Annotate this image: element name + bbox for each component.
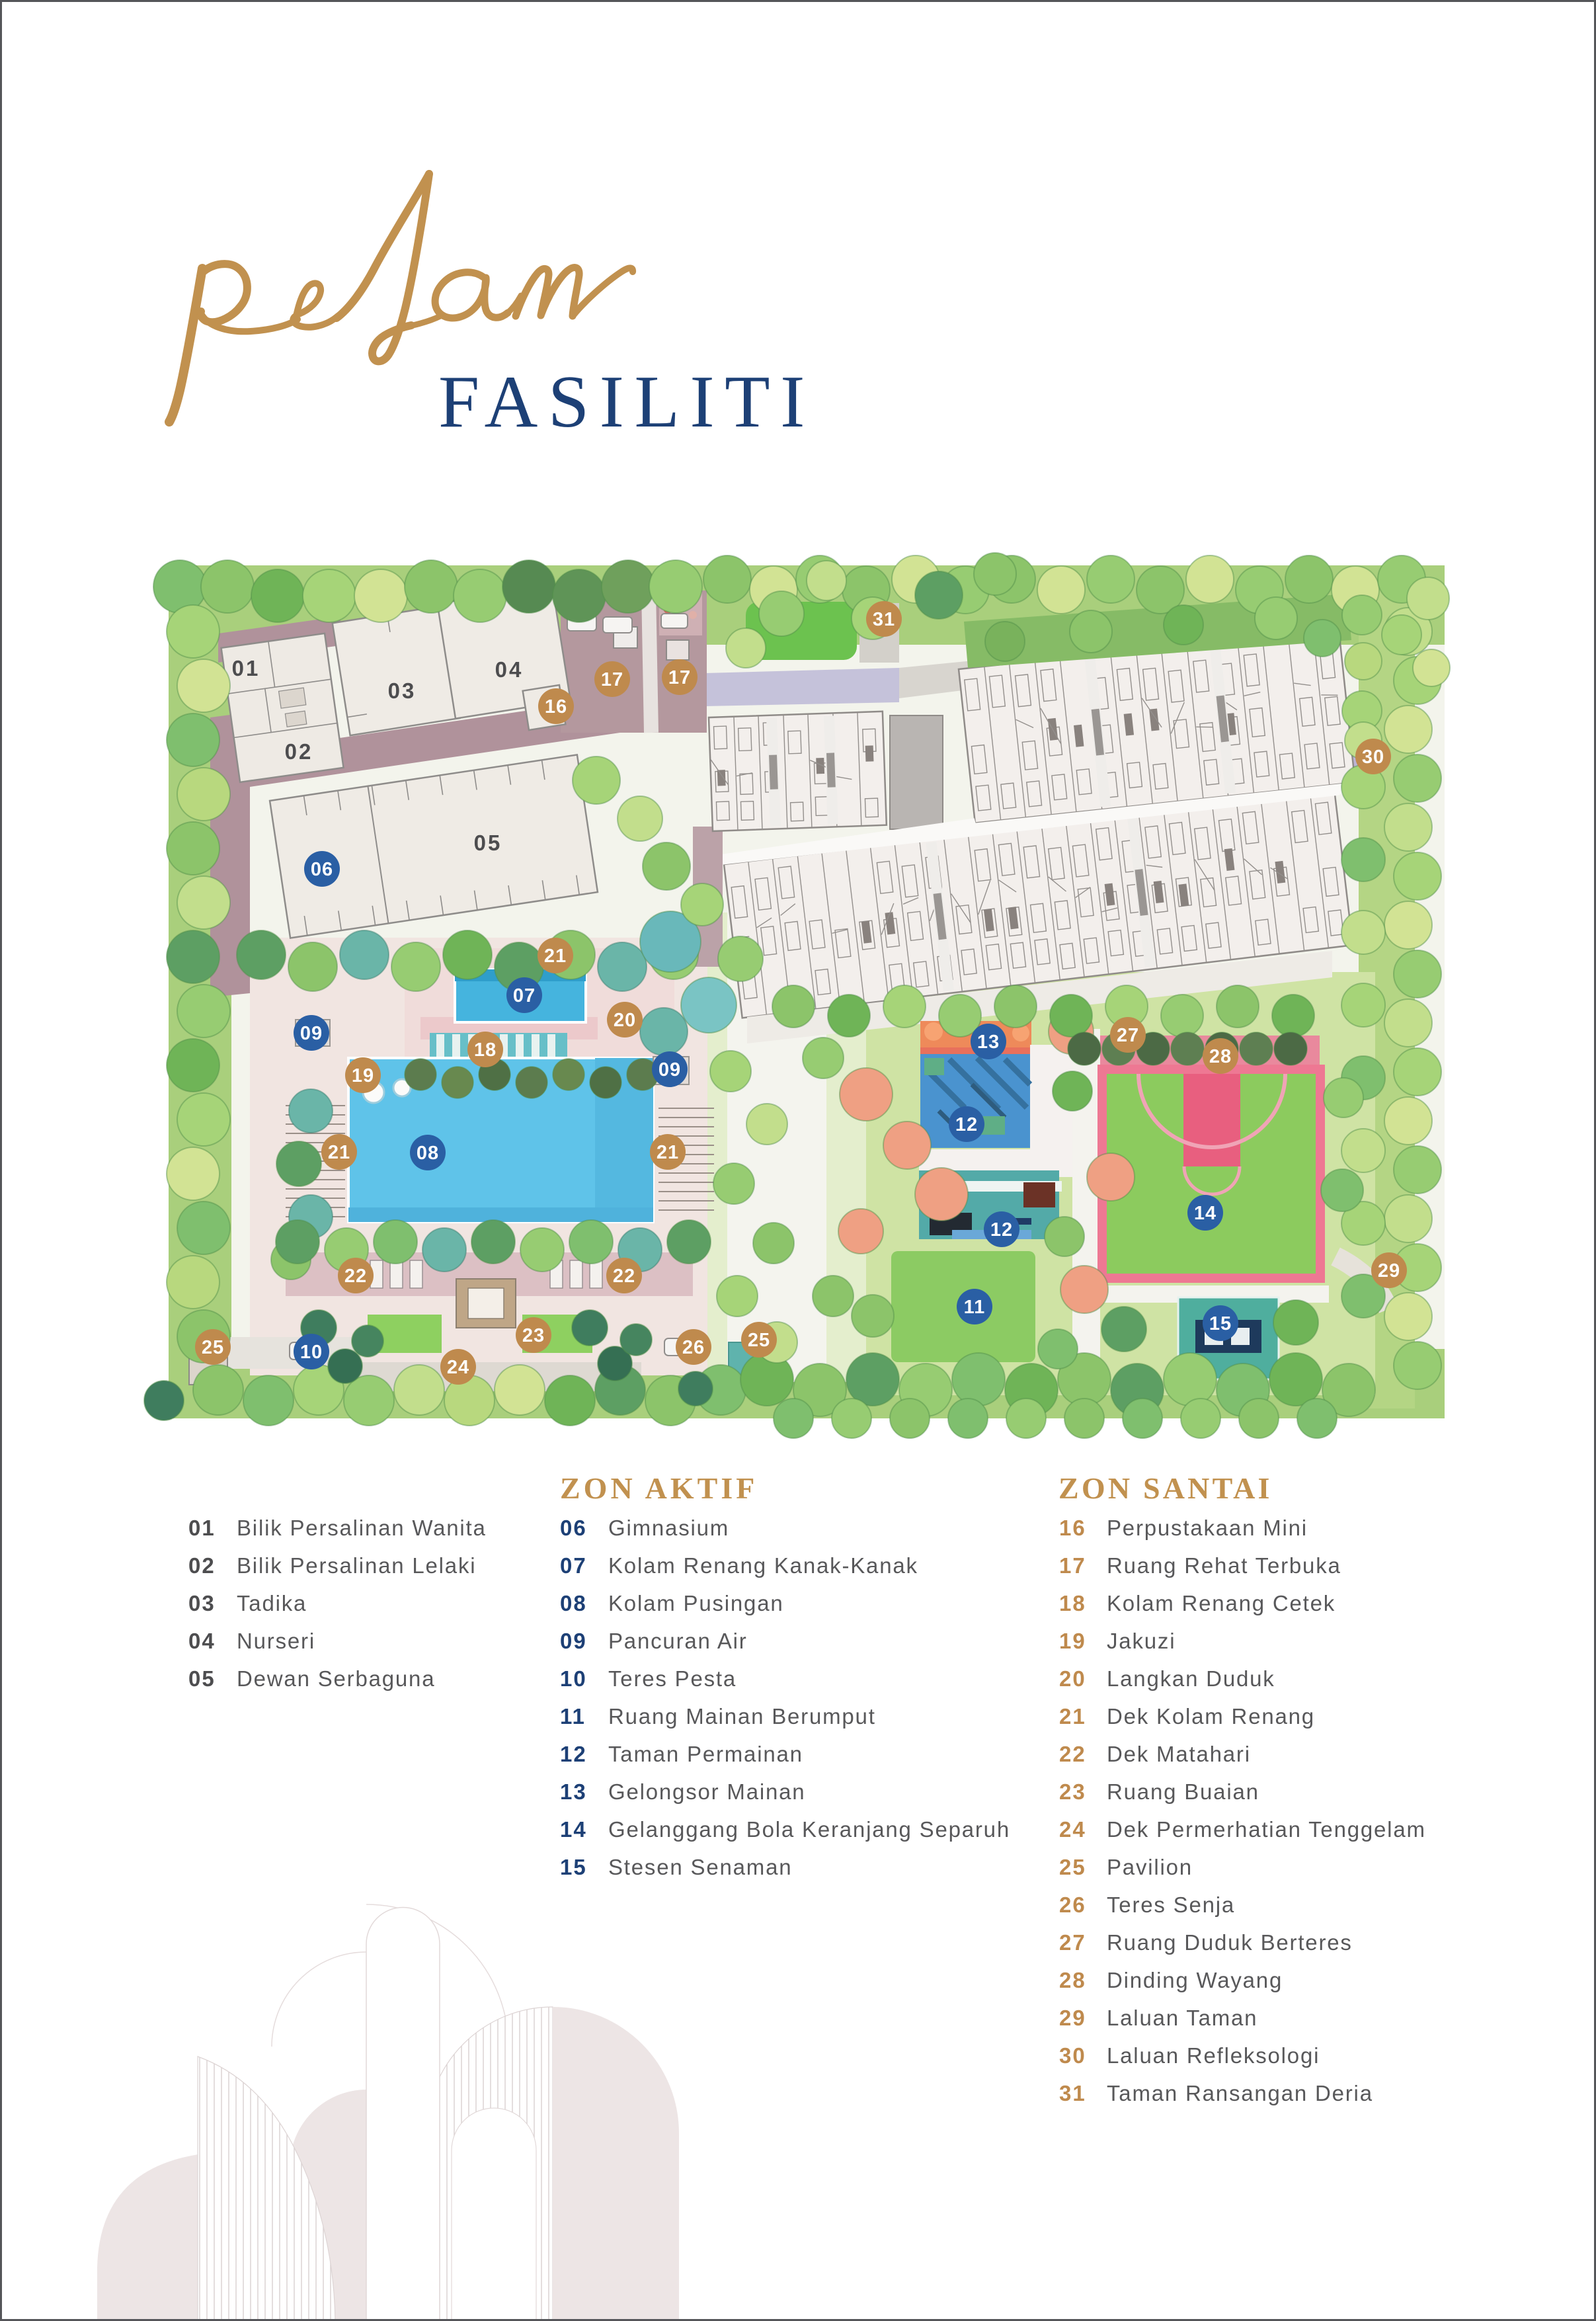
svg-text:09: 09 [300,1023,323,1044]
svg-text:Pavilion: Pavilion [1107,1855,1193,1879]
svg-text:30: 30 [1362,747,1384,768]
svg-text:09: 09 [560,1629,587,1653]
svg-text:21: 21 [1059,1704,1086,1729]
svg-text:04: 04 [188,1629,216,1653]
svg-text:13: 13 [560,1779,587,1804]
svg-text:26: 26 [1059,1893,1086,1917]
svg-text:Dek Permerhatian Tenggelam: Dek Permerhatian Tenggelam [1107,1817,1426,1842]
svg-text:Bilik Persalinan Wanita: Bilik Persalinan Wanita [237,1516,487,1540]
svg-text:30: 30 [1059,2043,1086,2068]
svg-text:11: 11 [964,1297,986,1318]
svg-text:06: 06 [311,859,333,880]
svg-text:Dek Matahari: Dek Matahari [1107,1742,1251,1766]
svg-text:Dek Kolam Renang: Dek Kolam Renang [1107,1704,1315,1729]
svg-text:12: 12 [955,1114,978,1135]
svg-text:Laluan Refleksologi: Laluan Refleksologi [1107,2043,1320,2068]
svg-text:Nurseri: Nurseri [237,1629,315,1653]
svg-text:05: 05 [188,1666,216,1691]
svg-text:07: 07 [513,985,536,1006]
svg-text:16: 16 [545,696,567,717]
svg-text:28: 28 [1059,1968,1086,1992]
svg-text:04: 04 [495,657,524,682]
svg-text:23: 23 [1059,1779,1086,1804]
svg-text:28: 28 [1209,1046,1232,1067]
svg-text:08: 08 [560,1591,587,1615]
svg-text:Teres Senja: Teres Senja [1107,1893,1235,1917]
svg-text:20: 20 [1059,1666,1086,1691]
svg-text:25: 25 [1059,1855,1086,1879]
svg-text:25: 25 [202,1337,224,1358]
svg-text:31: 31 [873,609,895,630]
svg-text:29: 29 [1059,2006,1086,2030]
svg-text:13: 13 [977,1032,1000,1053]
svg-text:31: 31 [1059,2081,1086,2105]
svg-text:21: 21 [544,946,567,967]
svg-text:Gimnasium: Gimnasium [608,1516,729,1540]
svg-text:10: 10 [560,1666,587,1691]
svg-text:18: 18 [1059,1591,1086,1615]
svg-text:17: 17 [601,669,623,690]
svg-text:25: 25 [748,1330,770,1351]
svg-text:17: 17 [668,667,691,688]
svg-text:12: 12 [560,1742,587,1766]
svg-text:08: 08 [417,1143,439,1164]
svg-text:Gelanggang Bola Keranjang Sepa: Gelanggang Bola Keranjang Separuh [608,1817,1010,1842]
svg-text:01: 01 [232,656,260,680]
svg-text:Dewan Serbaguna: Dewan Serbaguna [237,1666,435,1691]
svg-text:Pancuran Air: Pancuran Air [608,1629,748,1653]
svg-text:24: 24 [1059,1817,1086,1842]
svg-text:02: 02 [188,1553,216,1578]
svg-text:21: 21 [328,1142,350,1163]
svg-text:21: 21 [657,1142,679,1163]
svg-text:Ruang Duduk Berteres: Ruang Duduk Berteres [1107,1930,1353,1955]
svg-text:Perpustakaan Mini: Perpustakaan Mini [1107,1516,1308,1540]
svg-text:Ruang Mainan Berumput: Ruang Mainan Berumput [608,1704,876,1729]
svg-text:ZON SANTAI: ZON SANTAI [1058,1471,1273,1505]
svg-text:05: 05 [474,831,502,855]
svg-text:FASILITI: FASILITI [438,361,815,443]
svg-text:14: 14 [560,1817,587,1842]
svg-text:Ruang Buaian: Ruang Buaian [1107,1779,1259,1804]
svg-text:11: 11 [560,1704,586,1729]
svg-text:ZON AKTIF: ZON AKTIF [560,1471,758,1505]
svg-text:Ruang Rehat Terbuka: Ruang Rehat Terbuka [1107,1553,1341,1578]
svg-text:12: 12 [990,1219,1013,1241]
svg-text:02: 02 [285,739,313,764]
svg-text:14: 14 [1194,1203,1217,1224]
svg-text:17: 17 [1059,1553,1086,1578]
svg-text:15: 15 [1209,1313,1232,1334]
svg-text:Bilik Persalinan Lelaki: Bilik Persalinan Lelaki [237,1553,476,1578]
svg-text:06: 06 [560,1516,587,1540]
svg-text:03: 03 [388,678,417,703]
svg-text:23: 23 [522,1325,545,1346]
svg-text:26: 26 [682,1337,705,1358]
svg-text:Teres Pesta: Teres Pesta [608,1666,737,1691]
svg-text:16: 16 [1059,1516,1086,1540]
svg-text:24: 24 [447,1357,469,1378]
svg-text:29: 29 [1378,1260,1400,1282]
svg-text:Jakuzi: Jakuzi [1107,1629,1176,1653]
svg-text:03: 03 [188,1591,216,1615]
svg-text:Taman Ransangan Deria: Taman Ransangan Deria [1107,2081,1373,2105]
svg-text:27: 27 [1059,1930,1086,1955]
svg-text:Gelongsor Mainan: Gelongsor Mainan [608,1779,805,1804]
svg-text:Kolam Pusingan: Kolam Pusingan [608,1591,784,1615]
svg-text:Laluan Taman: Laluan Taman [1107,2006,1257,2030]
svg-text:Kolam Renang Cetek: Kolam Renang Cetek [1107,1591,1336,1615]
svg-text:22: 22 [613,1266,635,1287]
svg-text:Kolam Renang Kanak-Kanak: Kolam Renang Kanak-Kanak [608,1553,918,1578]
svg-text:19: 19 [1059,1629,1086,1653]
svg-text:Taman Permainan: Taman Permainan [608,1742,803,1766]
svg-text:19: 19 [352,1065,374,1086]
svg-text:01: 01 [188,1516,216,1540]
svg-text:20: 20 [614,1010,636,1031]
svg-text:07: 07 [560,1553,587,1578]
svg-text:10: 10 [300,1342,323,1363]
svg-text:15: 15 [560,1855,587,1879]
svg-text:18: 18 [474,1039,497,1061]
svg-text:Langkan Duduk: Langkan Duduk [1107,1666,1275,1691]
svg-text:Tadika: Tadika [237,1591,307,1615]
svg-text:09: 09 [658,1059,681,1080]
svg-text:Stesen Senaman: Stesen Senaman [608,1855,792,1879]
svg-text:22: 22 [344,1266,367,1287]
svg-text:22: 22 [1059,1742,1086,1766]
svg-text:Dinding Wayang: Dinding Wayang [1107,1968,1283,1992]
svg-text:27: 27 [1117,1025,1139,1046]
